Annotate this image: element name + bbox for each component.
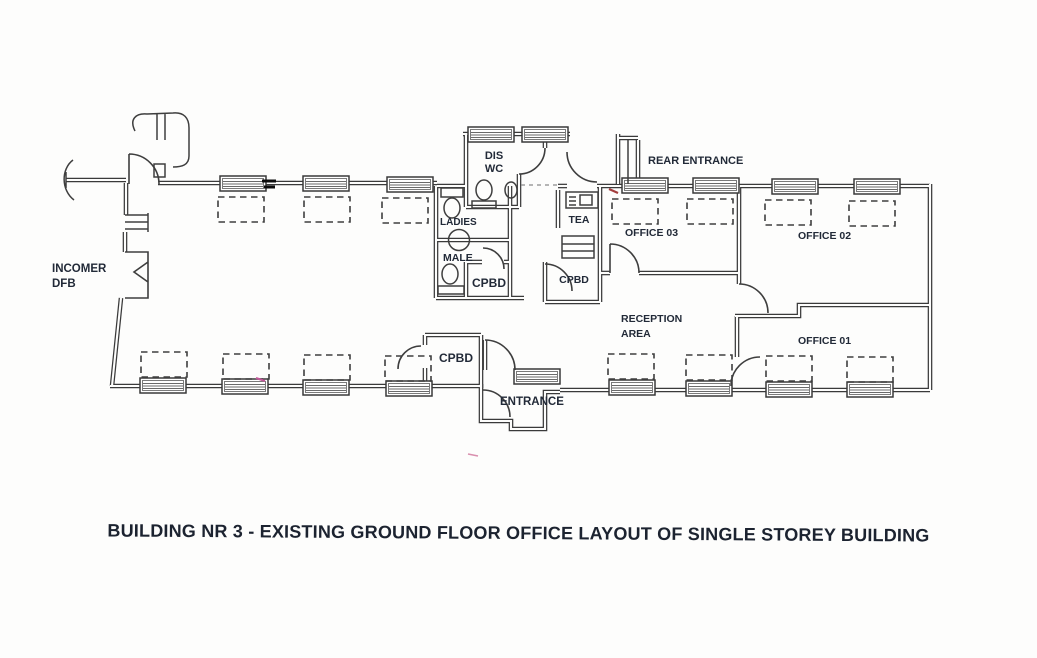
window [220, 176, 266, 191]
radiator [218, 197, 264, 222]
radiator [686, 355, 732, 380]
lobby-door-swing [485, 340, 515, 370]
window [386, 381, 432, 396]
radiator [765, 200, 811, 225]
label-tea: TEA [569, 214, 590, 226]
windows [140, 127, 900, 397]
window [847, 382, 893, 397]
window [303, 176, 349, 191]
radiator [223, 354, 269, 379]
radiator [141, 352, 187, 377]
label-reception-line1: RECEPTION [621, 313, 682, 325]
window [693, 178, 739, 193]
radiator [304, 197, 350, 222]
label-dis-wc-line2: WC [485, 163, 503, 175]
toilet-ladies [441, 188, 463, 218]
incomer-double-door [125, 252, 148, 298]
label-office-02: OFFICE 02 [798, 230, 851, 242]
label-cpbd-corridor: CPBD [559, 274, 589, 286]
scan-mark-pink-2 [468, 454, 478, 456]
window [303, 380, 349, 395]
tea-counter [566, 192, 598, 208]
label-cpbd-entrance: CPBD [439, 351, 473, 365]
radiator [608, 354, 654, 379]
dis-wc-door-swing [519, 148, 545, 174]
label-ladies: LADIES [440, 217, 477, 228]
label-cpbd-wc-block: CPBD [472, 276, 506, 290]
radiators [141, 197, 895, 382]
label-entrance: ENTRANCE [500, 396, 564, 408]
window [140, 378, 186, 393]
label-incomer-line1: INCOMER [52, 263, 107, 275]
entrance-threshold [514, 369, 560, 384]
scanned-drawing-page: INCOMER DFB DIS WC REAR ENTRANCE LADIES … [0, 0, 1037, 658]
radiator [687, 199, 733, 224]
radiator [304, 355, 350, 380]
office02-door-swing [739, 284, 768, 313]
office01-door-swing [731, 357, 760, 386]
tea-shelves [562, 236, 594, 258]
radiator [847, 357, 893, 382]
incomer-louvre [125, 213, 148, 232]
radiator [849, 201, 895, 226]
label-reception-line2: AREA [621, 328, 651, 340]
window [609, 380, 655, 395]
scan-mark-red [609, 189, 618, 193]
office03-door-swing [610, 244, 639, 273]
label-office-03: OFFICE 03 [625, 227, 678, 239]
cpbd-wc-door-swing [483, 248, 504, 269]
window [772, 179, 818, 194]
cpbd-entrance-door-swing [398, 346, 421, 369]
porch-canopy [133, 113, 189, 167]
label-office-01: OFFICE 01 [798, 335, 851, 347]
window [468, 127, 514, 142]
window [854, 179, 900, 194]
label-incomer-line2: DFB [52, 278, 76, 290]
window [766, 382, 812, 397]
radiator [382, 198, 428, 223]
label-dis-wc-line1: DIS [485, 150, 503, 162]
window [522, 127, 568, 142]
radiator [766, 356, 812, 381]
toilet-dis-wc [472, 180, 496, 208]
label-male: MALE [443, 252, 473, 264]
window [387, 177, 433, 192]
window [222, 379, 268, 394]
rear-door-swing [567, 152, 597, 182]
floor-plan: INCOMER DFB DIS WC REAR ENTRANCE LADIES … [0, 0, 1037, 658]
window [622, 178, 668, 193]
radiator [612, 199, 658, 224]
label-rear-entrance: REAR ENTRANCE [648, 155, 743, 167]
window [686, 381, 732, 396]
toilet-male [438, 264, 464, 294]
